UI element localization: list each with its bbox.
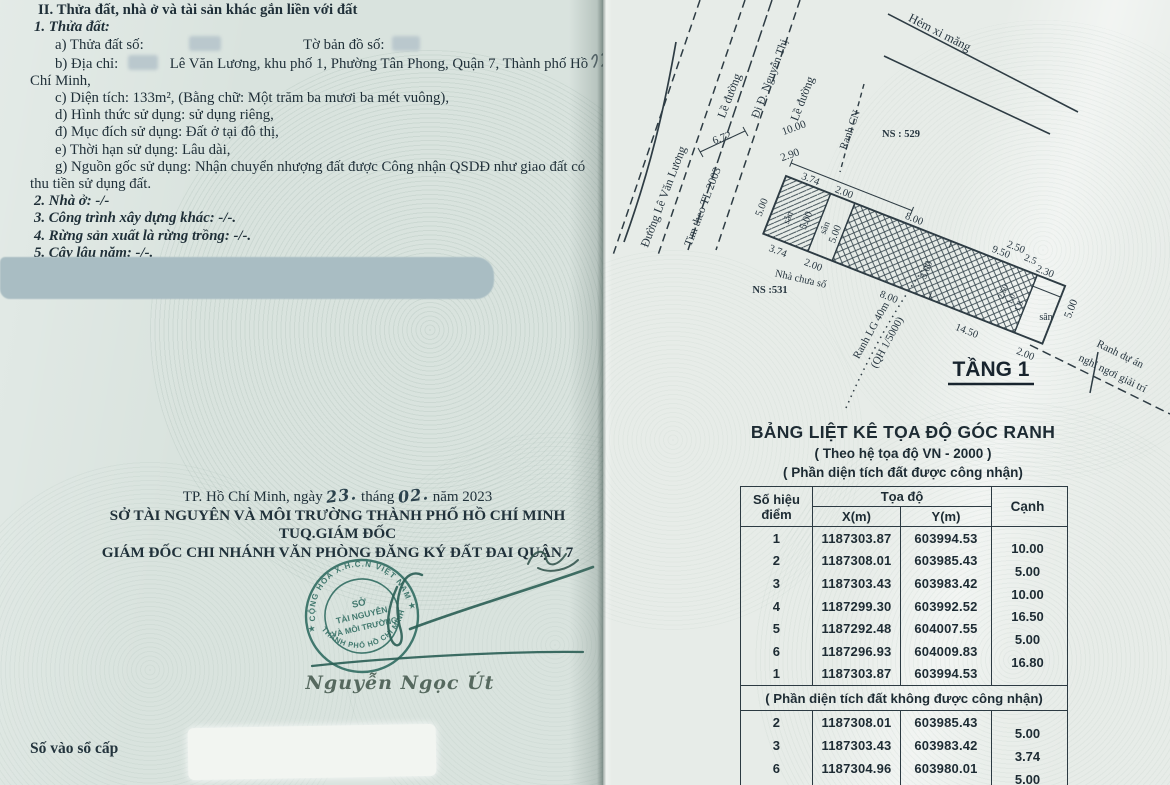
table-cell: 7 — [741, 780, 813, 785]
address-text: Lê Văn Lương, khu phố 1, Phường Tân Phon… — [170, 56, 588, 72]
dim-label: 14.50 — [954, 322, 980, 341]
table-cell: 603980.01 — [901, 757, 992, 780]
table-title: BẢNG LIỆT KÊ TỌA ĐỘ GÓC RANH — [731, 422, 1075, 443]
item-c: c) Diện tích: 133m², (Bằng chữ: Một trăm… — [30, 90, 595, 107]
house-number-label: NS : 529 — [882, 129, 920, 140]
item-e: e) Thời hạn sử dụng: Lâu dài, — [30, 142, 595, 159]
edge-length: 5.00 — [992, 772, 1063, 785]
table-cell: 603994.53 — [901, 663, 992, 686]
handwritten-day: 23. — [325, 484, 358, 507]
table-cell: 1 — [741, 663, 813, 686]
header-point-line1: Số hiệu — [753, 492, 800, 507]
land-parcel-outline — [763, 159, 1071, 343]
redaction-map-sheet — [392, 36, 420, 51]
floor-plan-title: TẦNG 1 — [952, 358, 1029, 381]
item-4: 4. Rừng sản xuất là rừng trồng: -/-. — [30, 228, 595, 245]
table-cell: 4 — [741, 595, 813, 618]
item-g: g) Nguồn gốc sử dụng: Nhận chuyển nhượng… — [30, 159, 595, 176]
header-point-line2: điểm — [761, 507, 791, 522]
header-edge: Cạnh — [992, 487, 1063, 526]
yard-label: sân — [1039, 312, 1052, 323]
table-cell: 1187299.30 — [813, 595, 901, 618]
table-note-recognized: ( Phần diện tích đất được công nhận) — [731, 465, 1075, 480]
dim-label: 3.74 — [767, 243, 789, 260]
item-2: 2. Nhà ở: -/- — [30, 193, 595, 210]
redaction-address-number — [128, 55, 158, 70]
table-cell: 1 — [741, 527, 813, 550]
date-line: TP. Hồ Chí Minh, ngày 23. tháng 02. năm … — [85, 486, 590, 507]
address-label: b) Địa chỉ: — [55, 56, 118, 72]
table-cell: 604009.83 — [901, 640, 992, 663]
date-year: năm 2023 — [433, 489, 493, 505]
redaction-notes-box — [0, 257, 494, 299]
authority-title: TUQ.GIÁM ĐỐC — [85, 525, 590, 543]
land-parcel-section: II. Thửa đất, nhà ở và tài sản khác gắn … — [30, 2, 595, 279]
ranh-cn-label: Ranh CN — [837, 108, 862, 151]
road-label: Lề đường — [787, 74, 817, 122]
edge-length: 5.00 — [992, 564, 1063, 579]
table-cell: 1187308.01 — [813, 711, 901, 734]
alley-label: Hẻm xi măng — [906, 11, 974, 55]
table-cell: 2 — [741, 711, 813, 734]
dim-label: 2.90 — [779, 146, 802, 164]
site-plan-page: Lề đường Đi Đ. Nguyễn Thị Lề đường Đường… — [603, 0, 1170, 785]
site-plan-drawing: Lề đường Đi Đ. Nguyễn Thị Lề đường Đường… — [603, 0, 1170, 420]
item-d: d) Hình thức sử dụng: sử dụng riêng, — [30, 107, 595, 124]
redaction-parcel-number — [189, 36, 221, 51]
header-y: Y(m) — [901, 507, 992, 526]
table-cell: 5 — [741, 617, 813, 640]
table-cell: 2 — [741, 550, 813, 573]
edge-length: 16.50 — [992, 609, 1063, 624]
table-cell: 1187303.43 — [813, 572, 901, 595]
table-header: Số hiệu điểm Tọa độ X(m) Y(m) Cạnh — [741, 487, 1067, 527]
dim-label: 10.00 — [780, 118, 808, 138]
edge-length: 16.80 — [992, 655, 1063, 670]
signature-strokes — [200, 545, 600, 685]
table-cell: 6 — [741, 640, 813, 663]
table-body-recognized: 1 1187303.87 603994.53 2 1187308.01 6039… — [741, 527, 1067, 685]
signer-name: Nguyễn Ngọc Út — [290, 672, 510, 694]
edge-column: 5.00 3.74 5.00 — [992, 711, 1063, 785]
item-dd: đ) Mục đích sử dụng: Đất ở tại đô thị, — [30, 124, 595, 141]
table-cell: 1187292.48 — [813, 617, 901, 640]
table-subtitle: ( Theo hệ tọa độ VN - 2000 ) — [731, 446, 1075, 461]
item-3: 3. Công trình xây dựng khác: -/-. — [30, 210, 595, 227]
alley-lines — [884, 14, 1078, 134]
table-body-unrecognized: 2 1187308.01 603985.43 3 1187303.43 6039… — [741, 711, 1067, 785]
table-cell: 603992.52 — [901, 595, 992, 618]
table-cell: 3 — [741, 572, 813, 595]
page-fold — [597, 0, 612, 785]
header-x: X(m) — [813, 507, 901, 526]
table-cell: 1187308.01 — [813, 550, 901, 573]
table-cell: 604007.55 — [901, 617, 992, 640]
road-centerline-label: Tim theo TL 2003 — [683, 166, 724, 249]
dim-label: 2.5 — [1022, 252, 1038, 267]
item-a: a) Thửa đất số: Tờ bản đồ số: — [30, 36, 595, 54]
item-b: b) Địa chỉ: Lê Văn Lương, khu phố 1, Phư… — [30, 55, 595, 73]
issuing-office: SỞ TÀI NGUYÊN VÀ MÔI TRƯỜNG THÀNH PHỐ HỒ… — [85, 507, 590, 525]
edge-length: 5.00 — [992, 726, 1063, 741]
table-cell: 603994.53 — [901, 527, 992, 550]
date-month-label: tháng — [361, 489, 394, 505]
table-cell: 1187303.87 — [813, 663, 901, 686]
dim-label: 6.72 — [711, 129, 733, 147]
redaction-register-number — [188, 724, 437, 780]
table-cell: 3 — [741, 734, 813, 757]
item-1: 1. Thửa đất: — [30, 19, 595, 36]
table-cell: 1187303.87 — [813, 527, 901, 550]
dim-label: 5.00 — [1062, 297, 1081, 320]
table-cell: 603985.43 — [901, 711, 992, 734]
item-b-cont: Chí Minh, — [30, 73, 595, 90]
date-prefix: TP. Hồ Chí Minh, ngày — [183, 489, 323, 505]
handwritten-month: 02. — [397, 484, 430, 507]
edge-length: 10.00 — [992, 587, 1063, 602]
table-cell: 1187299.34 — [813, 780, 901, 785]
edge-length: 5.00 — [992, 632, 1063, 647]
dim-label: 5.00 — [754, 197, 771, 218]
coordinates-section: BẢNG LIỆT KÊ TỌA ĐỘ GÓC RANH ( Theo hệ t… — [731, 422, 1075, 785]
map-sheet-label: Tờ bản đồ số: — [303, 37, 384, 53]
ranh-du-an-line — [1030, 345, 1170, 414]
table-cell: 1187296.93 — [813, 640, 901, 663]
table-cell: 1187304.96 — [813, 757, 901, 780]
dim-label: 2.00 — [802, 257, 823, 274]
table-note-unrecognized: ( Phần diện tích đất không được công nhậ… — [741, 685, 1067, 711]
coordinates-table: Số hiệu điểm Tọa độ X(m) Y(m) Cạnh 1 118… — [740, 486, 1068, 785]
road-name-label: Đường Lê Văn Lương — [638, 144, 689, 249]
register-number-label: Số vào sổ cấp — [30, 740, 118, 758]
table-cell: 603985.84 — [901, 780, 992, 785]
header-coords: Tọa độ — [813, 487, 992, 507]
header-point: Số hiệu điểm — [741, 487, 813, 526]
edge-length: 3.74 — [992, 749, 1063, 764]
edge-length: 10.00 — [992, 541, 1063, 556]
section-title: II. Thửa đất, nhà ở và tài sản khác gắn … — [30, 2, 595, 19]
table-cell: 603983.42 — [901, 572, 992, 595]
table-cell: 603985.43 — [901, 550, 992, 573]
item-g-cont: thu tiền sử dụng đất. — [30, 176, 595, 193]
edge-column: 10.00 5.00 10.00 16.50 5.00 16.80 — [992, 527, 1063, 685]
certificate-text-page: II. Thửa đất, nhà ở và tài sản khác gắn … — [0, 0, 603, 785]
table-cell: 6 — [741, 757, 813, 780]
house-number-label: NS :531 — [752, 285, 787, 296]
table-cell: 1187303.43 — [813, 734, 901, 757]
parcel-number-label: a) Thửa đất số: — [55, 37, 144, 53]
table-cell: 603983.42 — [901, 734, 992, 757]
scanned-land-certificate: II. Thửa đất, nhà ở và tài sản khác gắn … — [0, 0, 1170, 785]
